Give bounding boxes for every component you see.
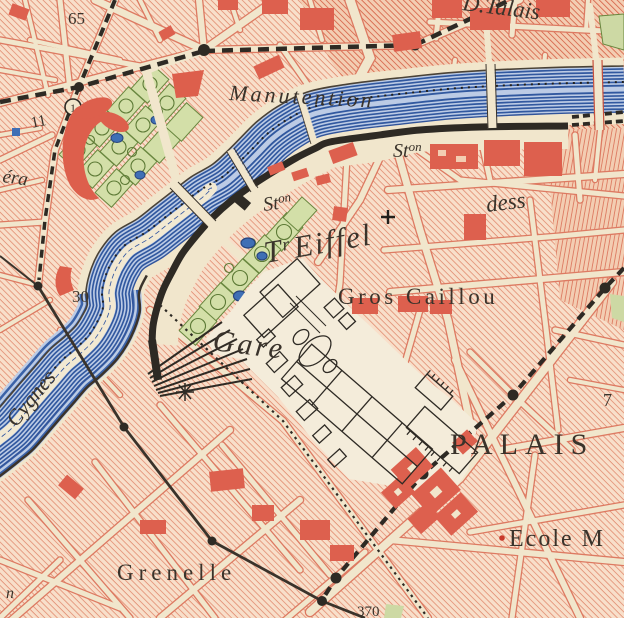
- svg-text:370: 370: [357, 604, 380, 618]
- svg-text:7: 7: [603, 390, 612, 410]
- svg-text:Grenelle: Grenelle: [117, 560, 236, 585]
- svg-text:Ecole M: Ecole M: [509, 526, 605, 552]
- svg-text:65: 65: [68, 9, 85, 28]
- svg-text:Gros Caillou: Gros Caillou: [338, 284, 498, 309]
- svg-text:éra: éra: [1, 166, 29, 190]
- svg-text:PALAIS: PALAIS: [450, 428, 594, 461]
- svg-text:n: n: [6, 585, 14, 602]
- svg-text:dess: dess: [485, 187, 527, 217]
- svg-text:30: 30: [72, 287, 89, 306]
